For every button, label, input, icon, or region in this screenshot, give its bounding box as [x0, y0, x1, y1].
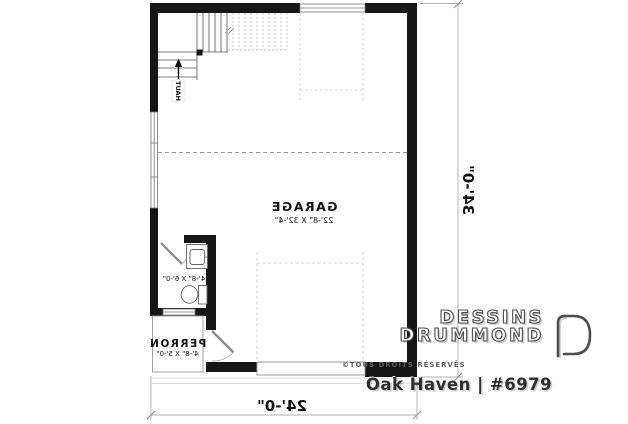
garage-dims: 22'-8" X 32'-4" [275, 216, 334, 225]
floorplan-sheet: HAUT [0, 0, 628, 424]
window-left-wall [151, 112, 158, 208]
bathroom-dims: 4'-8" X 6'-0" [163, 275, 205, 283]
wall-top-left [150, 3, 300, 13]
windows [151, 4, 365, 315]
copyright-text: ©TOUS DROITS RÉSERVÉS [324, 361, 594, 369]
window-bathroom-wall [163, 309, 195, 315]
overall-width-dimension: 24'-0" [257, 397, 307, 415]
wall-bottom-left [206, 362, 257, 372]
brand-line2: DRUMMOND [399, 327, 544, 345]
wall-bathroom-top [184, 235, 216, 243]
stair-newel-post [197, 50, 203, 56]
entry-door [212, 331, 234, 361]
stairs-haut-label: HAUT [174, 80, 182, 101]
wall-left-upper [150, 3, 158, 112]
drummond-d-logo-icon [550, 309, 594, 359]
wall-left-lower [150, 208, 158, 316]
title-block: DESSINS DRUMMOND ©TOUS DROITS RÉSERVÉS O… [324, 309, 594, 394]
perron-dims: 4'-8" X 5'-0" [156, 350, 198, 358]
window-top-wall [300, 4, 365, 12]
plan-title: Oak Haven | #6979 [324, 375, 594, 394]
perron-name: PERRON [149, 338, 207, 350]
stair-direction-arrow: HAUT [172, 59, 185, 103]
toilet [181, 286, 207, 305]
staircase [158, 13, 287, 80]
overall-height-dimension: 34'-0" [459, 165, 477, 215]
vanity-sink [187, 245, 208, 269]
garage-name: GARAGE [270, 199, 337, 214]
